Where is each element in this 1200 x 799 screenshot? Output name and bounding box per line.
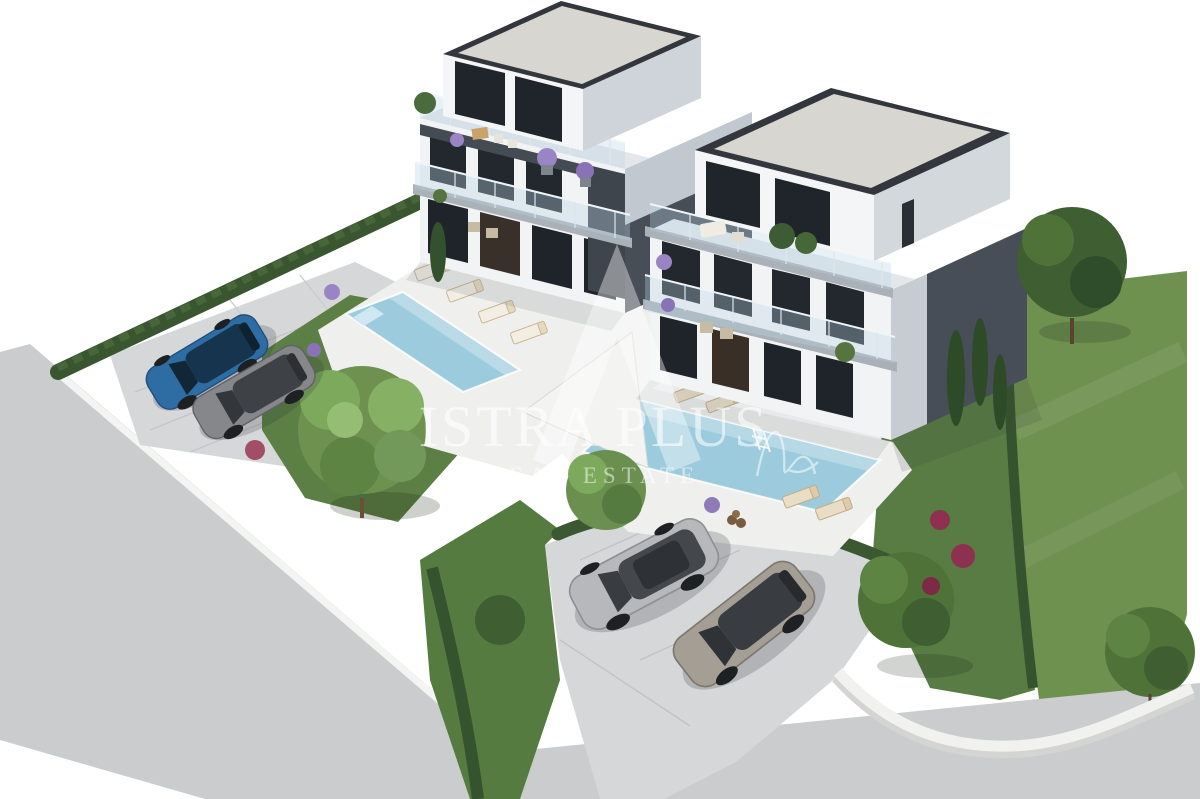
cypress-icon (430, 222, 446, 282)
watermark-tagline: REAL ESTATE (488, 463, 700, 488)
watermark-brand: ISTRA PLUS (419, 394, 770, 459)
side-wall-front-strip (891, 274, 927, 440)
render-canvas: ISTRA PLUS REAL ESTATE (0, 0, 1200, 799)
side-window-slit (902, 199, 914, 248)
bush-center (475, 595, 525, 645)
villa-render: ISTRA PLUS REAL ESTATE (0, 0, 1200, 799)
tree-center (566, 450, 646, 530)
